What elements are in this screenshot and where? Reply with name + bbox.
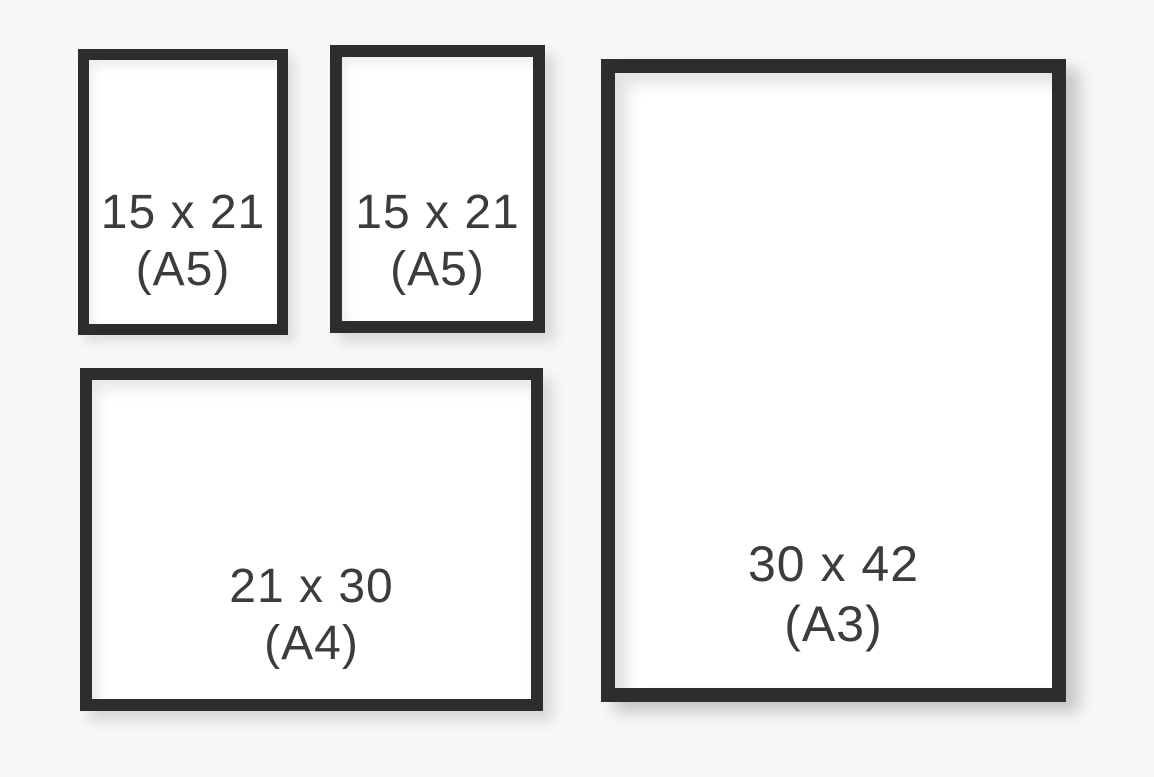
frame-format-label: (A3): [615, 594, 1052, 654]
frame-label: 15 x 21 (A5): [89, 184, 277, 298]
frame-label: 30 x 42 (A3): [615, 534, 1052, 654]
frame-size-label: 15 x 21: [89, 184, 277, 241]
frame-a4-landscape: 21 x 30 (A4): [80, 368, 543, 711]
frame-size-label: 30 x 42: [615, 534, 1052, 594]
frame-a3-portrait: 30 x 42 (A3): [601, 59, 1066, 702]
frame-format-label: (A5): [342, 241, 533, 298]
frame-format-label: (A5): [89, 241, 277, 298]
frame-size-label: 15 x 21: [342, 184, 533, 241]
frame-size-guide: 15 x 21 (A5) 15 x 21 (A5) 21 x 30 (A4) 3…: [0, 0, 1154, 777]
frame-label: 21 x 30 (A4): [92, 558, 531, 672]
frame-size-label: 21 x 30: [92, 558, 531, 615]
frame-a5-top-middle: 15 x 21 (A5): [330, 45, 545, 333]
frame-a5-top-left: 15 x 21 (A5): [78, 49, 288, 335]
frame-label: 15 x 21 (A5): [342, 184, 533, 298]
frame-format-label: (A4): [92, 615, 531, 672]
